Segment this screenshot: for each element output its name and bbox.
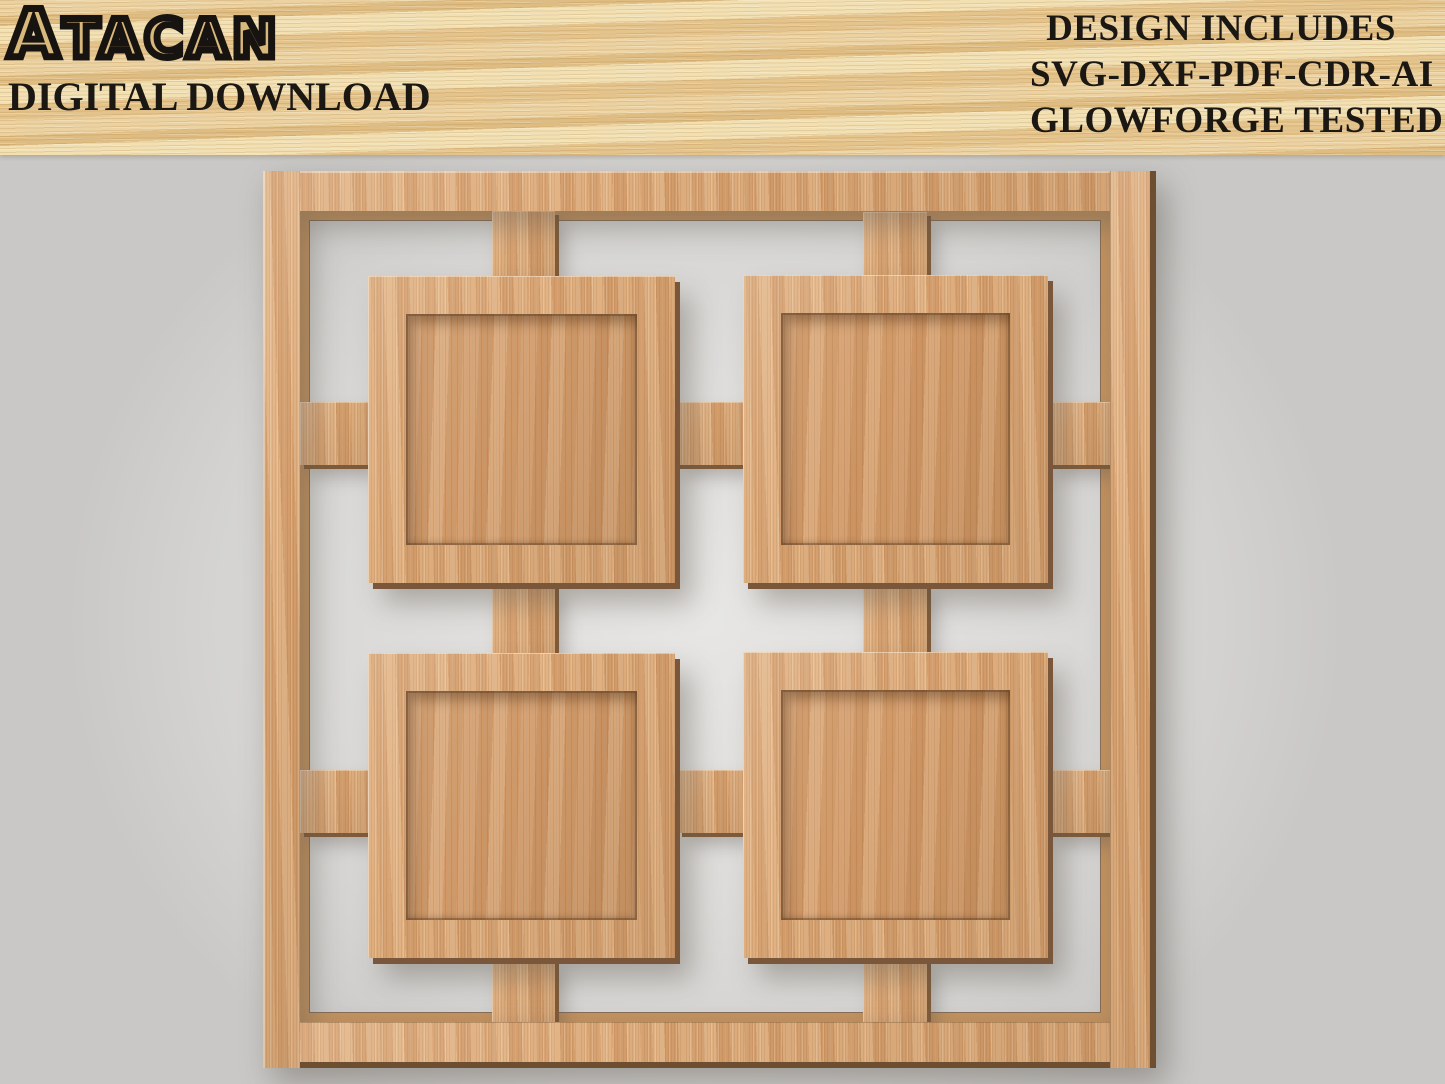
brand-logo: ATACAN — [8, 2, 431, 68]
brand-logo-rest: TACAN — [63, 9, 280, 70]
brand-logo-first-letter: A — [8, 0, 63, 73]
includes-block: DESIGN INCLUDES SVG-DXF-PDF-CDR-AI GLOWF… — [1030, 6, 1412, 144]
outer-frame-left-bar — [263, 171, 300, 1068]
brand-subtitle: DIGITAL DOWNLOAD — [8, 77, 431, 117]
grey-wall-backdrop — [0, 155, 1445, 1084]
outer-frame — [263, 171, 1156, 1068]
outer-frame-right-bar — [1110, 171, 1156, 1068]
outer-frame-bottom-bar — [263, 1022, 1156, 1068]
outer-frame-top-bar — [263, 171, 1156, 211]
banner: ATACAN DIGITAL DOWNLOAD DESIGN INCLUDES … — [0, 0, 1445, 155]
brand-block: ATACAN DIGITAL DOWNLOAD — [8, 2, 431, 117]
includes-line-3: GLOWFORGE TESTED — [1030, 98, 1412, 144]
includes-line-1: DESIGN INCLUDES — [1030, 6, 1412, 52]
includes-line-2: SVG-DXF-PDF-CDR-AI — [1030, 52, 1412, 98]
